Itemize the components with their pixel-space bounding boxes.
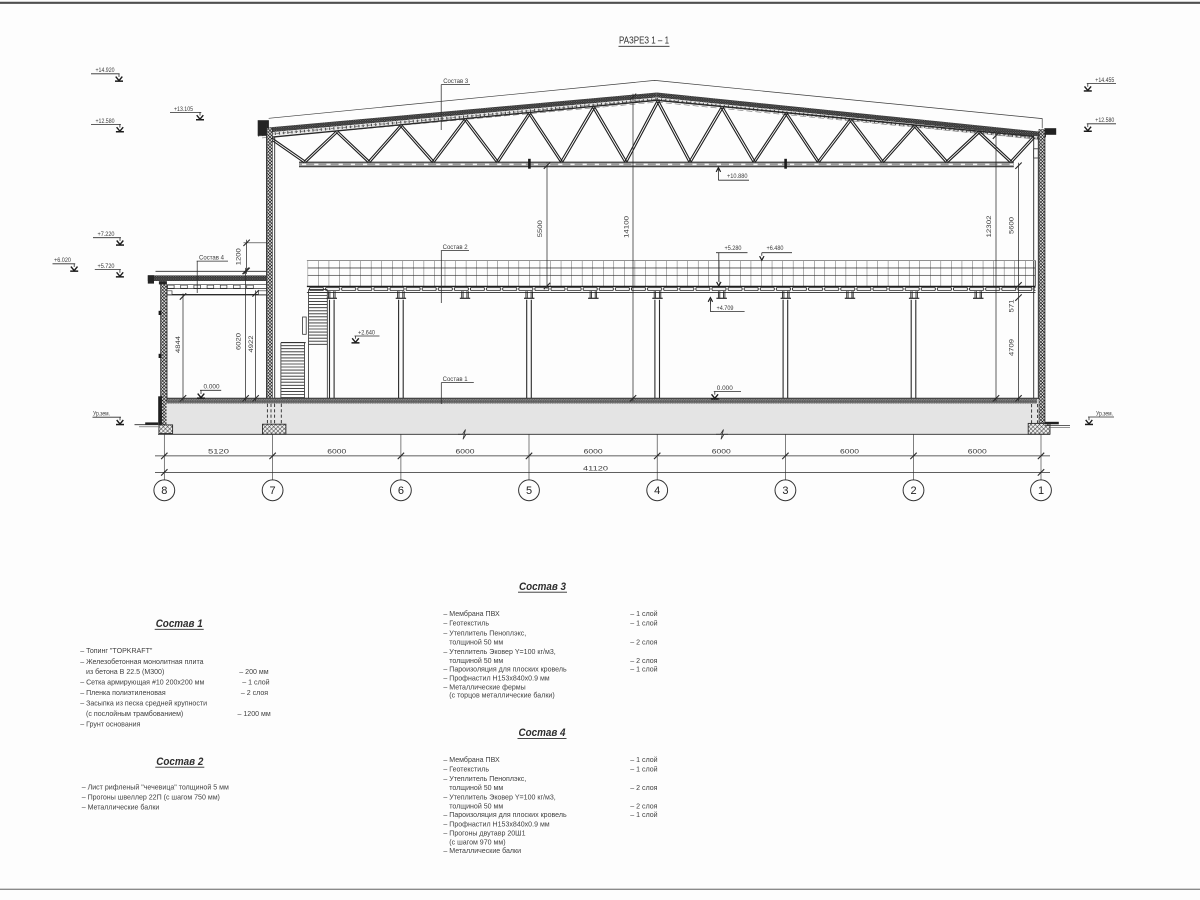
svg-text:6000: 6000 — [840, 450, 860, 456]
svg-text:+6.020: +6.020 — [54, 258, 72, 264]
svg-text:3: 3 — [782, 485, 788, 497]
svg-text:– Металлические фермы: – Металлические фермы — [443, 684, 525, 691]
svg-text:Состав 2: Состав 2 — [156, 756, 203, 768]
svg-text:– Сетка армирующая #10 200х200: – Сетка армирующая #10 200х200 мм — [80, 680, 204, 687]
svg-text:+13.105: +13.105 — [174, 107, 194, 113]
svg-text:– 1 слой: – 1 слой — [630, 811, 657, 819]
svg-text:6000: 6000 — [968, 450, 988, 456]
svg-text:4844: 4844 — [176, 335, 182, 353]
svg-text:Ур.зем.: Ур.зем. — [1096, 411, 1113, 417]
svg-text:– 2 слоя: – 2 слоя — [630, 804, 657, 811]
svg-text:6000: 6000 — [456, 450, 476, 456]
svg-text:(с послойным трамбованием): (с послойным трамбованием) — [80, 710, 183, 718]
svg-text:Состав 4: Состав 4 — [199, 255, 224, 262]
svg-text:4709: 4709 — [1009, 338, 1015, 356]
svg-text:41120: 41120 — [583, 466, 609, 472]
svg-text:– 200 мм: – 200 мм — [239, 669, 268, 676]
svg-text:– Засыпка из песка средней кру: – Засыпка из песка средней крупности — [80, 700, 207, 708]
svg-text:– Утеплитель Эковер Y=100 кг/м: – Утеплитель Эковер Y=100 кг/м3, — [443, 649, 555, 656]
svg-text:– Утеплитель Эковер Y=100 кг/м: – Утеплитель Эковер Y=100 кг/м3, — [443, 795, 555, 802]
svg-text:– Лист рифленый "чечевица" тол: – Лист рифленый "чечевица" толщиной 5 мм — [82, 784, 229, 792]
svg-text:– Металлические балки: – Металлические балки — [82, 803, 160, 811]
svg-text:– 2 слоя: – 2 слоя — [630, 785, 657, 792]
svg-text:– Утеплитель Пеноплэкс,: – Утеплитель Пеноплэкс, — [443, 776, 526, 783]
svg-text:Ур.зем.: Ур.зем. — [93, 412, 110, 418]
svg-text:– 1200 мм: – 1200 мм — [238, 711, 271, 718]
svg-text:5: 5 — [526, 485, 532, 497]
svg-text:+12.580: +12.580 — [96, 119, 116, 125]
svg-text:2: 2 — [910, 485, 916, 497]
svg-text:14100: 14100 — [625, 215, 631, 238]
svg-text:– Пароизоляция для плоских кро: – Пароизоляция для плоских кровель — [443, 812, 567, 819]
svg-text:+4.709: +4.709 — [717, 306, 735, 312]
svg-text:0.000: 0.000 — [717, 386, 734, 392]
svg-text:– Утеплитель Пеноплэкс,: – Утеплитель Пеноплэкс, — [443, 630, 526, 637]
svg-text:толщиной 50 мм: толщиной 50 мм — [443, 803, 503, 811]
svg-text:– Топинг "TOPKRAFT": – Топинг "TOPKRAFT" — [80, 648, 153, 655]
svg-text:– Геотекстиль: – Геотекстиль — [443, 621, 489, 628]
svg-text:– 2 слоя: – 2 слоя — [630, 658, 657, 665]
svg-text:5600: 5600 — [1009, 216, 1015, 234]
svg-text:– 1 слой: – 1 слой — [242, 679, 269, 687]
svg-text:– 1 слой: – 1 слой — [630, 665, 657, 673]
svg-text:8: 8 — [161, 485, 167, 497]
svg-text:– 1 слой: – 1 слой — [630, 610, 657, 618]
svg-text:Состав 1: Состав 1 — [156, 618, 203, 630]
svg-text:из бетона В 22.5 (М300): из бетона В 22.5 (М300) — [80, 668, 164, 676]
svg-text:– Мембрана ПВХ: – Мембрана ПВХ — [443, 756, 500, 764]
svg-text:+14.920: +14.920 — [96, 68, 116, 74]
svg-text:+12.580: +12.580 — [1095, 118, 1115, 124]
svg-text:– Прогоны двутавр 20Ш1: – Прогоны двутавр 20Ш1 — [443, 831, 525, 838]
svg-text:– Профнастил Н153х840х0.9 мм: – Профнастил Н153х840х0.9 мм — [443, 675, 549, 682]
svg-text:– 2 слоя: – 2 слоя — [630, 639, 657, 646]
svg-text:12302: 12302 — [987, 215, 993, 238]
svg-text:– Прогоны швеллер 22П (с шагом: – Прогоны швеллер 22П (с шагом 750 мм) — [82, 795, 220, 802]
svg-text:+2.640: +2.640 — [358, 330, 376, 336]
svg-text:571: 571 — [1009, 299, 1015, 313]
svg-text:– Пленка полиэтиленовая: – Пленка полиэтиленовая — [80, 690, 166, 697]
svg-text:6000: 6000 — [584, 450, 604, 456]
svg-text:+5.280: +5.280 — [725, 246, 743, 252]
svg-text:Состав 2: Состав 2 — [443, 244, 468, 251]
svg-text:7: 7 — [270, 485, 276, 497]
svg-text:+7.220: +7.220 — [98, 232, 116, 238]
svg-text:Состав 4: Состав 4 — [519, 727, 566, 739]
svg-text:– 1 слой: – 1 слой — [630, 765, 657, 773]
svg-text:– Железобетонная монолитная п: – Железобетонная монолитная плита — [80, 658, 203, 666]
svg-text:Состав 3: Состав 3 — [519, 581, 566, 593]
svg-text:(с шагом 970 мм): (с шагом 970 мм) — [443, 840, 505, 847]
svg-text:(с торцов металлические балки): (с торцов металлические балки) — [443, 692, 554, 700]
svg-text:0.000: 0.000 — [204, 385, 221, 391]
svg-text:– 1 слой: – 1 слой — [630, 756, 657, 764]
svg-text:– Пароизоляция для плоских кро: – Пароизоляция для плоских кровель — [443, 666, 567, 673]
svg-text:– 2 слоя: – 2 слоя — [241, 690, 268, 697]
svg-text:толщиной 50 мм: толщиной 50 мм — [443, 657, 503, 665]
svg-text:Состав 3: Состав 3 — [443, 78, 468, 85]
svg-text:+6.480: +6.480 — [767, 246, 785, 252]
svg-text:– Геотекстиль: – Геотекстиль — [443, 766, 489, 773]
svg-text:4922: 4922 — [249, 335, 255, 353]
svg-text:– Профнастил Н153х840х0.9 мм: – Профнастил Н153х840х0.9 мм — [443, 822, 549, 829]
svg-text:1200: 1200 — [237, 247, 243, 265]
svg-text:1: 1 — [1038, 485, 1044, 497]
svg-text:+10.880: +10.880 — [727, 174, 748, 180]
svg-text:+14.455: +14.455 — [1095, 78, 1115, 84]
svg-text:6000: 6000 — [712, 450, 732, 456]
svg-text:– 1 слой: – 1 слой — [630, 620, 657, 628]
svg-text:5500: 5500 — [538, 219, 544, 237]
svg-text:4: 4 — [654, 485, 660, 497]
svg-text:+5.720: +5.720 — [98, 264, 116, 270]
svg-text:толщиной 50 мм: толщиной 50 мм — [443, 784, 503, 792]
svg-text:толщиной 50 мм: толщиной 50 мм — [443, 638, 503, 646]
svg-text:Состав 1: Состав 1 — [443, 376, 468, 383]
svg-text:6: 6 — [398, 485, 404, 497]
svg-text:РАЗРЕЗ 1 – 1: РАЗРЕЗ 1 – 1 — [619, 35, 669, 47]
svg-text:6020: 6020 — [237, 332, 243, 350]
svg-text:– Мембрана ПВХ: – Мембрана ПВХ — [443, 610, 500, 618]
svg-text:– Грунт основания: – Грунт основания — [80, 721, 140, 728]
svg-text:6000: 6000 — [327, 450, 347, 456]
svg-text:– Металлические балки: – Металлические балки — [443, 847, 521, 855]
svg-text:5120: 5120 — [208, 450, 230, 456]
